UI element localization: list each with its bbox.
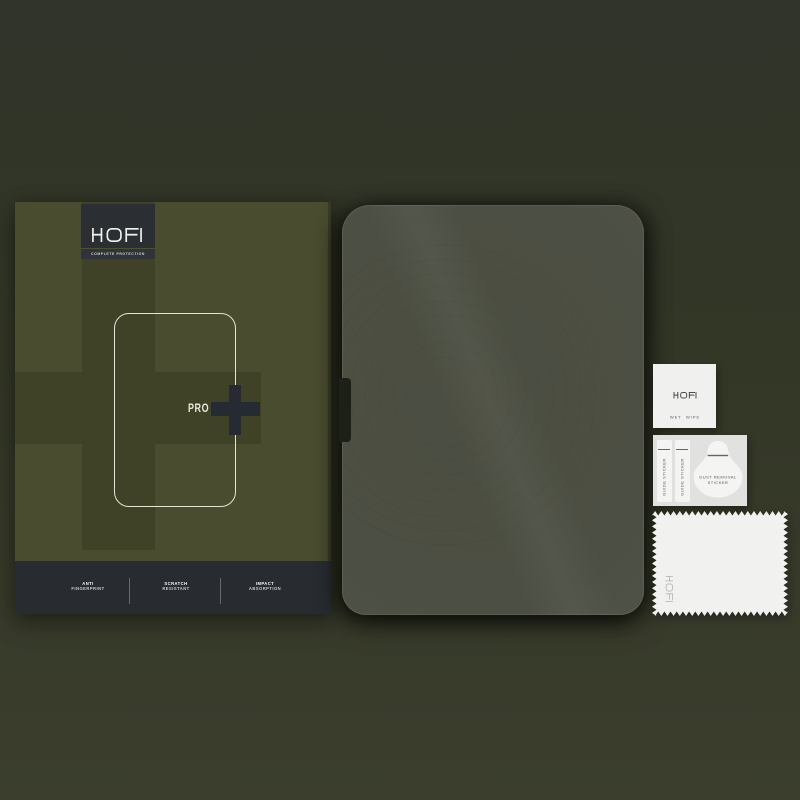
- svg-text:DUST REMOVAL: DUST REMOVAL: [699, 475, 736, 480]
- svg-text:STICKER: STICKER: [708, 480, 729, 485]
